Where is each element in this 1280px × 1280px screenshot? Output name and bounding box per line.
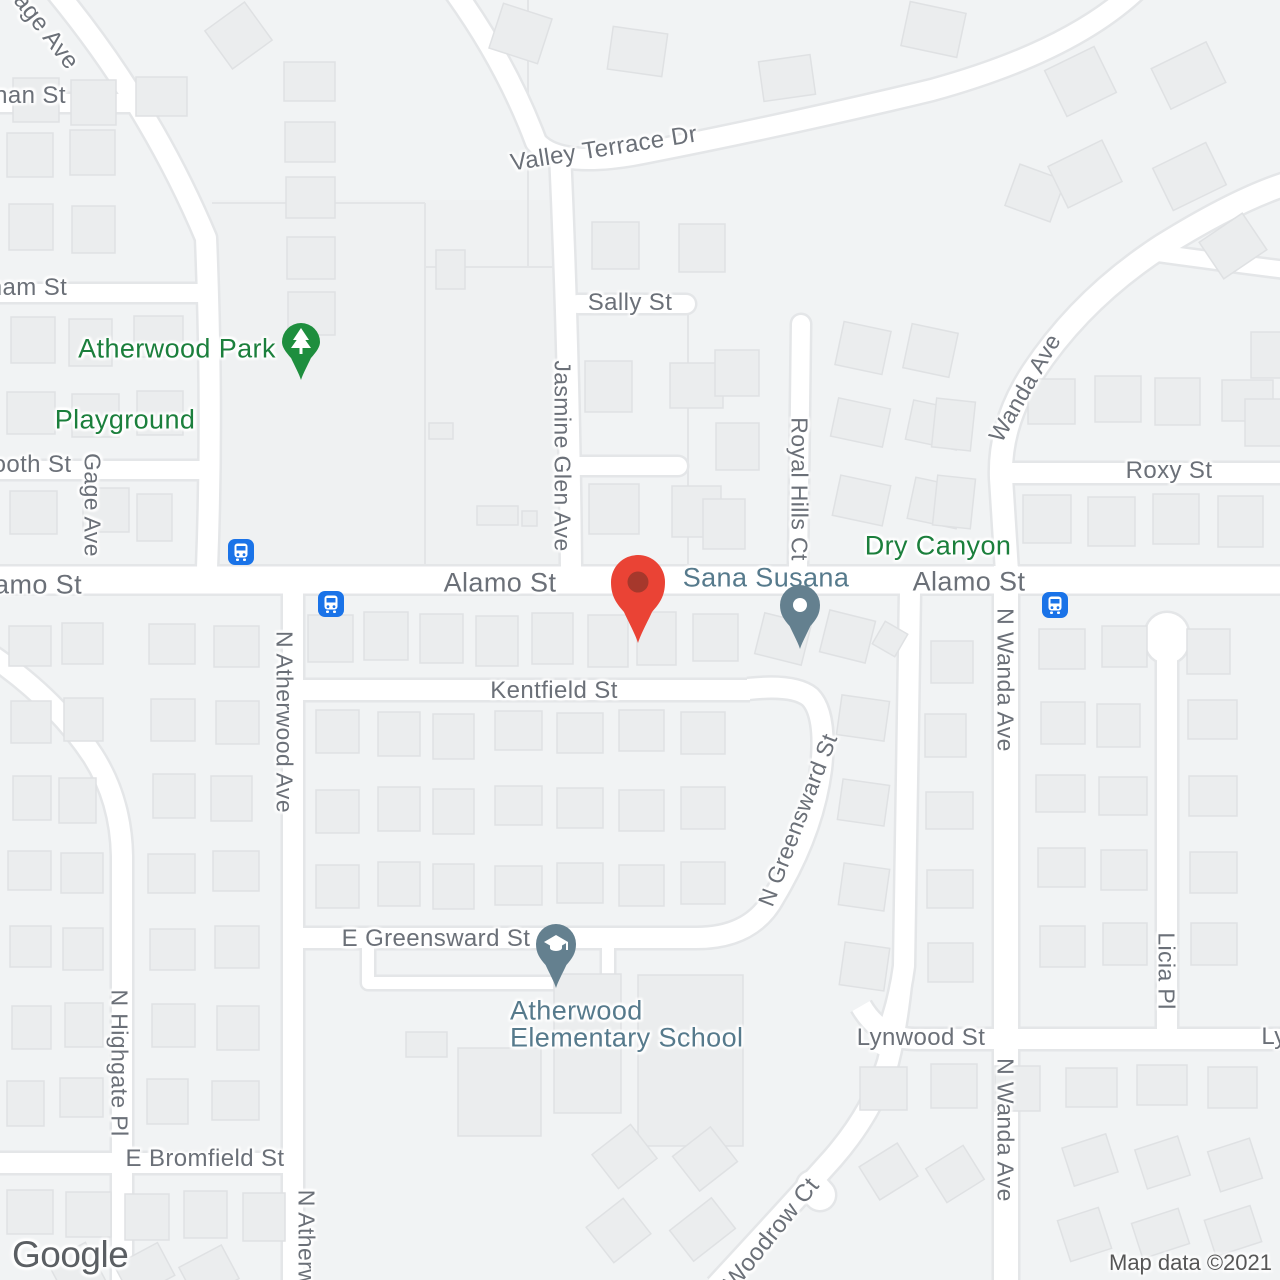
map-canvas[interactable]: Gage Avenan Stham Stooth Stamo StGage Av…: [0, 0, 1280, 1280]
google-logo[interactable]: Google: [12, 1234, 128, 1276]
bus-stop-icon[interactable]: [1042, 592, 1068, 623]
destination-pin[interactable]: [609, 551, 667, 650]
sana-susana-poi-pin[interactable]: [778, 583, 822, 656]
bus-stop-icon[interactable]: [318, 591, 344, 622]
map-attribution: Map data ©2021: [1109, 1250, 1272, 1276]
park-tree-pin[interactable]: [280, 320, 322, 387]
bus-stop-icon[interactable]: [228, 539, 254, 570]
school-pin[interactable]: [534, 922, 578, 995]
